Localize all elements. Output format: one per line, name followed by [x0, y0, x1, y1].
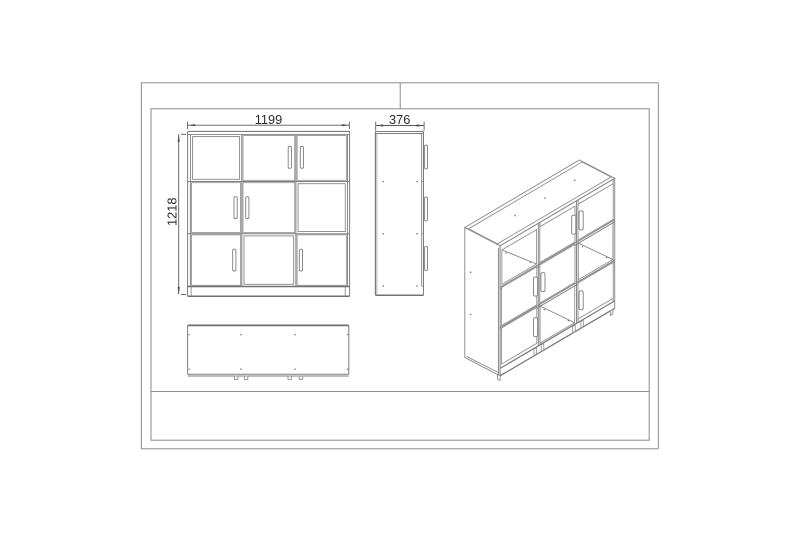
svg-text:376: 376 [389, 112, 410, 127]
svg-text:1218: 1218 [165, 198, 180, 226]
svg-text:1199: 1199 [255, 112, 283, 127]
